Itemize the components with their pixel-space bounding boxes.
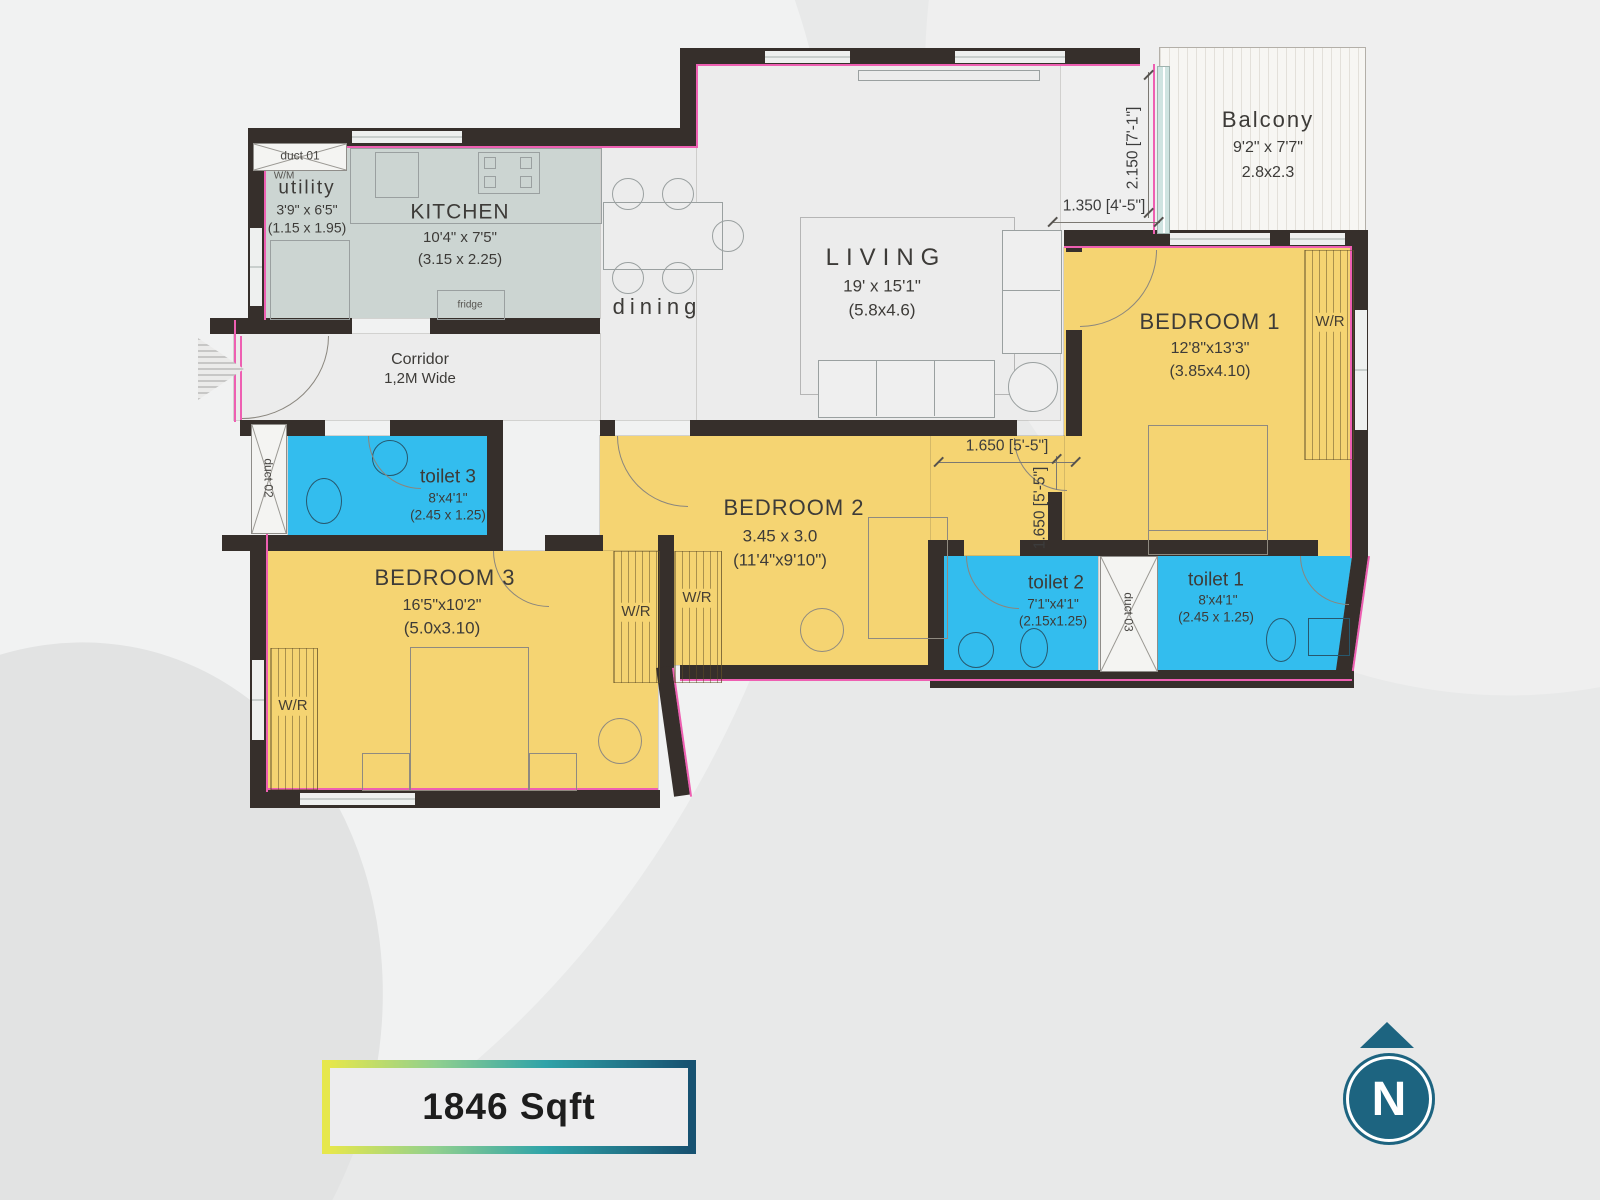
bedroom3-dim-m: (5.0x3.10): [404, 620, 481, 639]
wall-segment: [390, 420, 490, 436]
dim-extension-line: [1052, 222, 1160, 223]
boundary-line: [696, 64, 1140, 66]
dining-chair: [612, 262, 644, 294]
toilet2-name: toilet 2: [1028, 574, 1084, 595]
duct-03-label: duct 03: [1121, 592, 1134, 631]
bed-pillow-line: [1148, 530, 1266, 531]
bed-bedroom2: [868, 517, 948, 639]
corridor-width: 1,2M Wide: [384, 371, 456, 388]
wall-segment: [1048, 492, 1062, 556]
fridge-label: fridge: [457, 300, 482, 311]
window: [300, 793, 415, 805]
north-letter: N: [1372, 1072, 1407, 1127]
toilet-wc: [1020, 628, 1048, 668]
wall-segment: [210, 318, 352, 334]
bed-bedroom3: [410, 647, 529, 791]
utility-name: utility: [278, 179, 335, 200]
dining-table: [603, 202, 723, 270]
wardrobe-bedroom1: [1304, 250, 1354, 460]
bedroom1-dim: 12'8"x13'3": [1171, 340, 1250, 358]
toilet3-dim: 8'x4'1": [428, 492, 467, 507]
stove-burner: [484, 157, 496, 169]
dining-chair: [662, 262, 694, 294]
wardrobe-bedroom3-left: [270, 648, 318, 790]
toilet-basin: [958, 632, 994, 668]
wall-segment: [600, 420, 615, 436]
window: [352, 131, 462, 143]
window: [1170, 233, 1270, 245]
bedroom1-name: BEDROOM 1: [1139, 310, 1280, 334]
window: [955, 51, 1065, 63]
dim-extension-line: [1148, 72, 1149, 218]
bed-bedroom1: [1148, 425, 1268, 555]
dining-chair: [712, 220, 744, 252]
duct-01-label: duct 01: [280, 149, 319, 162]
window: [1290, 233, 1345, 245]
nightstand: [529, 753, 577, 791]
bedroom1-dim-m: (3.85x4.10): [1170, 363, 1251, 381]
wall-segment: [680, 48, 696, 146]
wardrobe-label: W/R: [1313, 313, 1346, 332]
stove-burner: [520, 157, 532, 169]
wall-segment: [1066, 330, 1082, 436]
living-name: LIVING: [826, 245, 947, 271]
window: [1355, 310, 1367, 430]
stove-burner: [520, 176, 532, 188]
dim-extension-line: [1056, 456, 1057, 490]
toilet-wc: [306, 478, 342, 524]
stool-bedroom3: [598, 718, 642, 764]
toilet1-dim: 8'x4'1": [1198, 594, 1237, 609]
boundary-line: [264, 146, 266, 320]
north-indicator: N: [1343, 1053, 1435, 1145]
boundary-line: [696, 64, 698, 148]
window: [252, 660, 264, 740]
toilet3-name: toilet 3: [420, 468, 476, 489]
wall-segment: [690, 420, 1017, 436]
balcony-dim-m: 2.8x2.3: [1242, 164, 1294, 182]
duct-02-label: duct 02: [261, 458, 274, 497]
toilet3-dim-m: (2.45 x 1.25): [410, 509, 486, 524]
toilet2-dim: 7'1"x4'1": [1027, 598, 1079, 613]
kitchen-dim: 10'4" x 7'5": [423, 230, 497, 247]
window: [765, 51, 850, 63]
kitchen-dim-m: (3.15 x 2.25): [418, 252, 502, 269]
dim-passage-v: 1.650 [5'-5"]: [1031, 467, 1048, 550]
wardrobe-label: W/R: [619, 603, 652, 622]
boundary-line: [1064, 246, 1352, 248]
floor-plan-canvas: duct 01 duct 02 duct 03 W/R W/R W/R W/R …: [0, 0, 1600, 1200]
dim-balcony-side: 2.150 [7'-1"]: [1124, 107, 1141, 190]
wall-segment: [658, 535, 674, 673]
kitchen-sink: [375, 152, 419, 198]
sofa-seat-line: [1002, 290, 1060, 291]
bedroom2-name: BEDROOM 2: [723, 496, 864, 520]
area-badge-label: 1846 Sqft: [422, 1086, 596, 1128]
toilet-basin-counter: [1308, 618, 1350, 656]
bedroom3-name: BEDROOM 3: [374, 566, 515, 590]
kitchen-name: KITCHEN: [410, 200, 509, 223]
wardrobe-label: W/R: [680, 589, 713, 608]
living-dim-m: (5.8x4.6): [848, 302, 915, 321]
stool-bedroom2: [800, 608, 844, 652]
balcony-dim: 9'2" x 7'7": [1233, 139, 1303, 157]
balcony-name: Balcony: [1222, 108, 1314, 132]
dining-name: dining: [613, 295, 702, 319]
utility-dim-m: (1.15 x 1.95): [268, 220, 347, 235]
wall-segment: [1066, 230, 1082, 252]
living-dim: 19' x 15'1": [843, 278, 921, 297]
wall-segment: [487, 420, 503, 551]
toilet-wc: [1266, 618, 1296, 662]
dining-chair: [662, 178, 694, 210]
sofa-seat-line: [934, 360, 935, 416]
utility-dim: 3'9" x 6'5": [276, 202, 337, 217]
toilet1-name: toilet 1: [1188, 571, 1244, 592]
corridor-name: Corridor: [391, 351, 449, 369]
dim-living-opening: 1.350 [4'-5"]: [1063, 197, 1146, 214]
boundary-line: [266, 534, 268, 792]
stove-burner: [484, 176, 496, 188]
sofa-seat-line: [876, 360, 877, 416]
wardrobe-label: W/R: [276, 697, 309, 716]
bedroom3-dim: 16'5"x10'2": [403, 597, 482, 615]
boundary-line: [680, 679, 1352, 681]
window: [250, 228, 262, 306]
toilet1-dim-m: (2.45 x 1.25): [1178, 611, 1254, 626]
bedroom2-dim: 3.45 x 3.0: [743, 528, 818, 547]
side-table: [1008, 362, 1058, 412]
dining-chair: [612, 178, 644, 210]
wardrobe-bedroom2: [674, 551, 722, 683]
tv-console: [858, 70, 1040, 81]
utility-washer: [270, 240, 350, 320]
nightstand: [362, 753, 410, 791]
toilet2-dim-m: (2.15x1.25): [1019, 615, 1087, 630]
bedroom2-dim-m: (11'4"x9'10"): [733, 552, 827, 571]
north-arrow-icon: [1360, 1022, 1414, 1048]
sofa-side: [1002, 230, 1062, 354]
dim-passage-h: 1.650 [5'-5"]: [966, 437, 1049, 454]
wall-segment: [430, 318, 600, 334]
balcony-slider: [1157, 66, 1170, 234]
area-badge: 1846 Sqft: [322, 1060, 696, 1154]
wall-segment: [545, 535, 603, 551]
sofa-long: [818, 360, 995, 418]
